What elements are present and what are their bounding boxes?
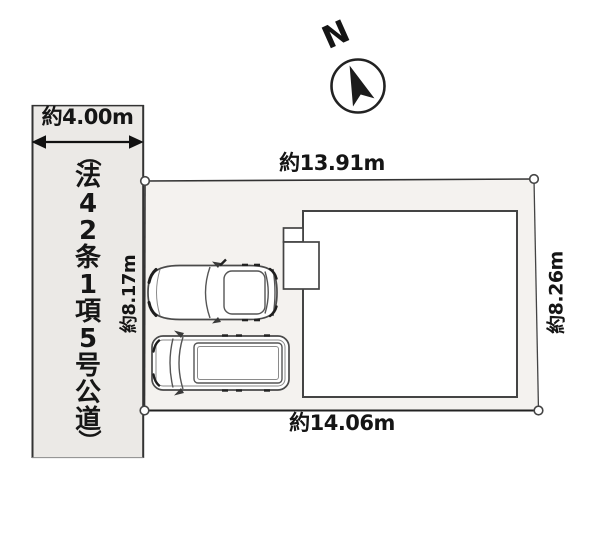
road-name-char: 1 [79,271,97,298]
porch-body [284,242,320,289]
road-name-vertical: （法42条1項5号公道） [66,147,110,449]
building-outline [303,211,517,397]
compass [332,60,385,113]
dim-left-label: 約8.17m [121,248,139,340]
road-name-char: （ [80,144,96,167]
road-name-char: 2 [79,217,97,244]
car-van [152,331,289,396]
road-name-char: ） [80,430,96,453]
porch-step [284,228,304,242]
corner-marker-bottom-right [534,406,543,415]
road-name-char: 法 [75,163,101,190]
corner-marker-top-left [141,177,150,186]
car-sedan [148,260,277,324]
dim-right-label: 約8.26m [548,247,567,339]
road-width-label: 約4.00m [28,107,147,128]
corner-marker-top-right [530,175,539,184]
road-name-char: 条 [75,244,101,271]
road-name-char: 項 [75,298,101,325]
dim-top-label: 約13.91m [232,153,432,174]
site-plan: 約13.91m 約14.06m 約8.26m 約8.17m 約4.00m N （… [0,0,600,536]
road-name-char: 5 [79,325,97,352]
road-name-char: 公 [75,379,101,406]
road-name-char: 4 [79,190,97,217]
compass-needle-icon [339,61,375,106]
road-name-char: 号 [75,352,101,379]
dim-bottom-label: 約14.06m [242,413,442,434]
corner-marker-bottom-left [140,406,149,415]
